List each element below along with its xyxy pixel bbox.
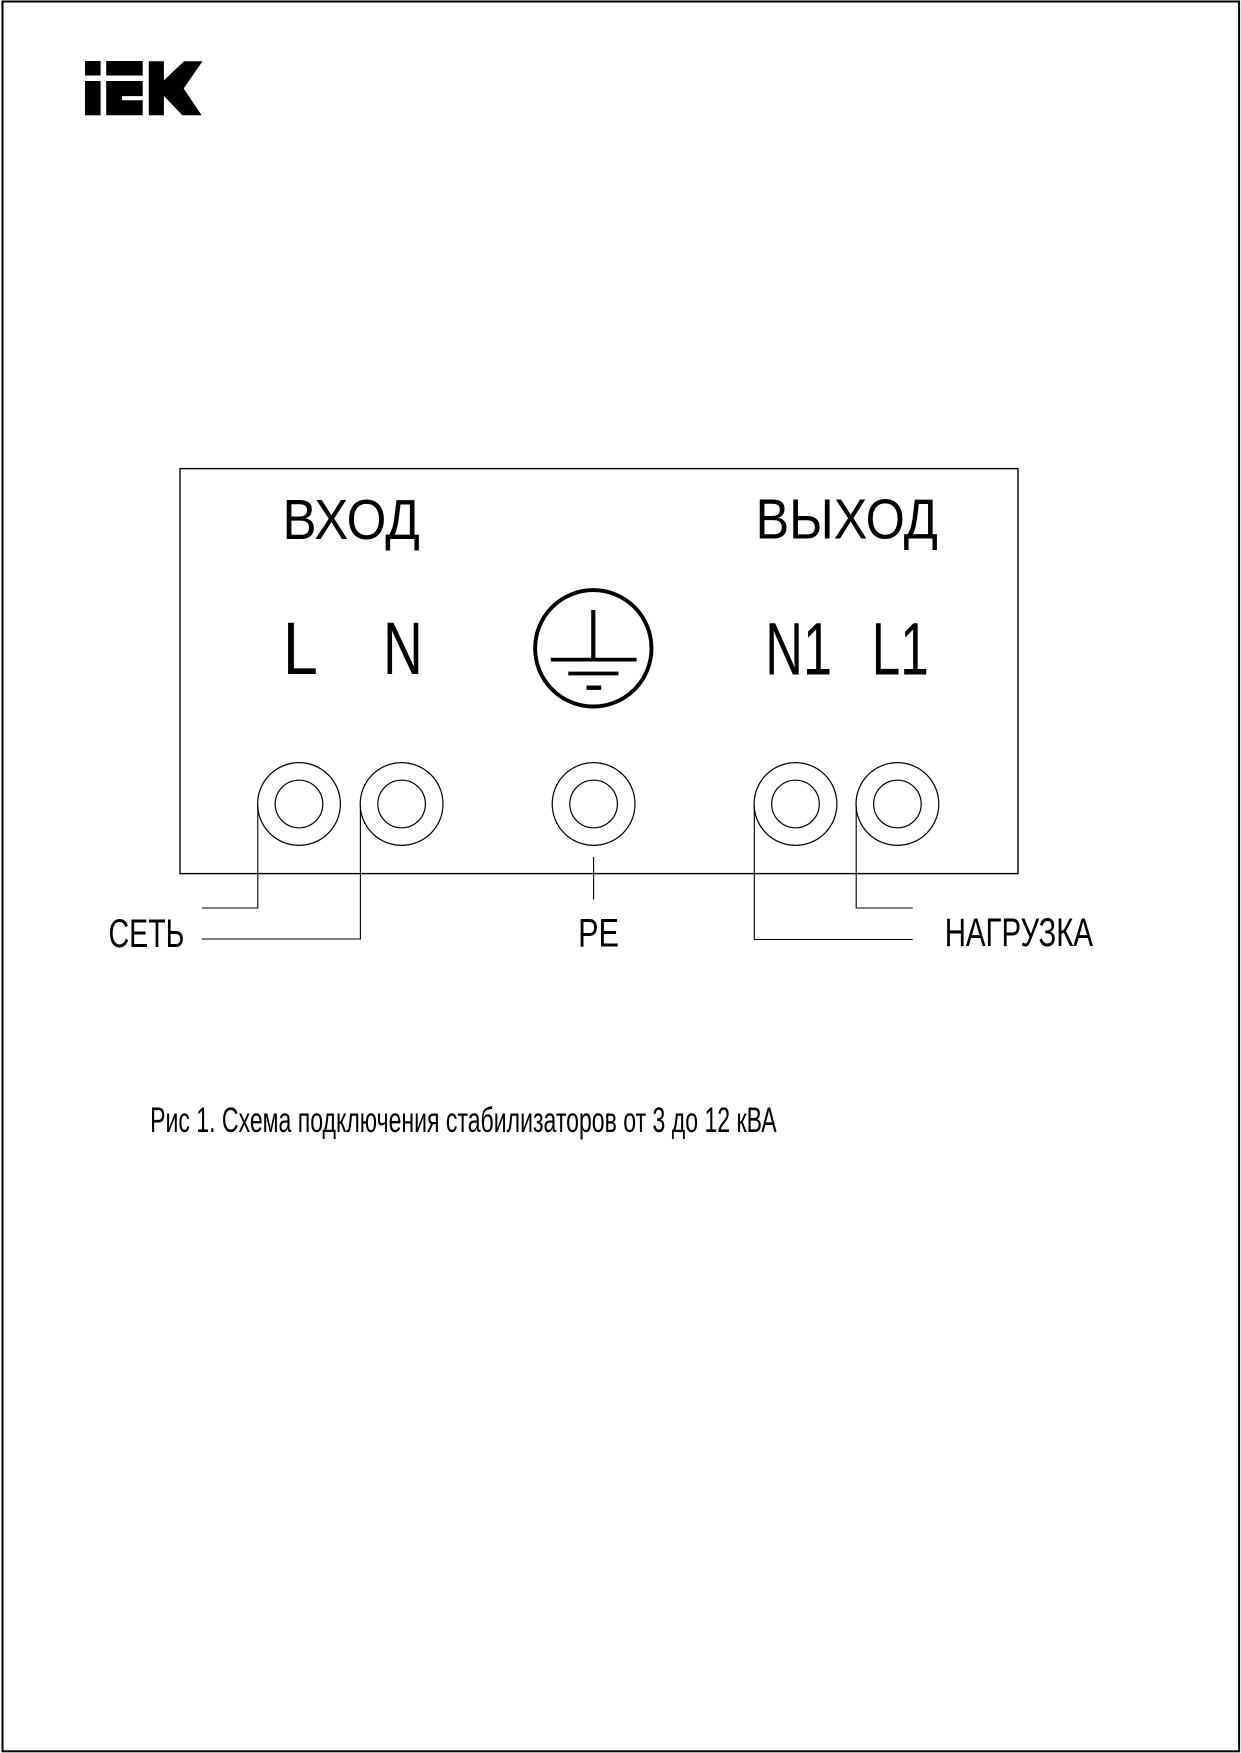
svg-text:PE: PE — [578, 912, 619, 956]
svg-text:НАГРУЗКА: НАГРУЗКА — [945, 911, 1094, 955]
svg-text:Рис 1. Схема подключения стаби: Рис 1. Схема подключения стабилизаторов … — [150, 1100, 777, 1140]
svg-text:СЕТЬ: СЕТЬ — [109, 912, 185, 956]
svg-text:ВЫХОД: ВЫХОД — [756, 487, 938, 551]
svg-text:N1: N1 — [765, 607, 832, 690]
svg-text:L1: L1 — [872, 607, 929, 690]
svg-text:ВХОД: ВХОД — [283, 488, 420, 552]
svg-text:N: N — [383, 607, 423, 690]
svg-text:L: L — [283, 607, 318, 690]
